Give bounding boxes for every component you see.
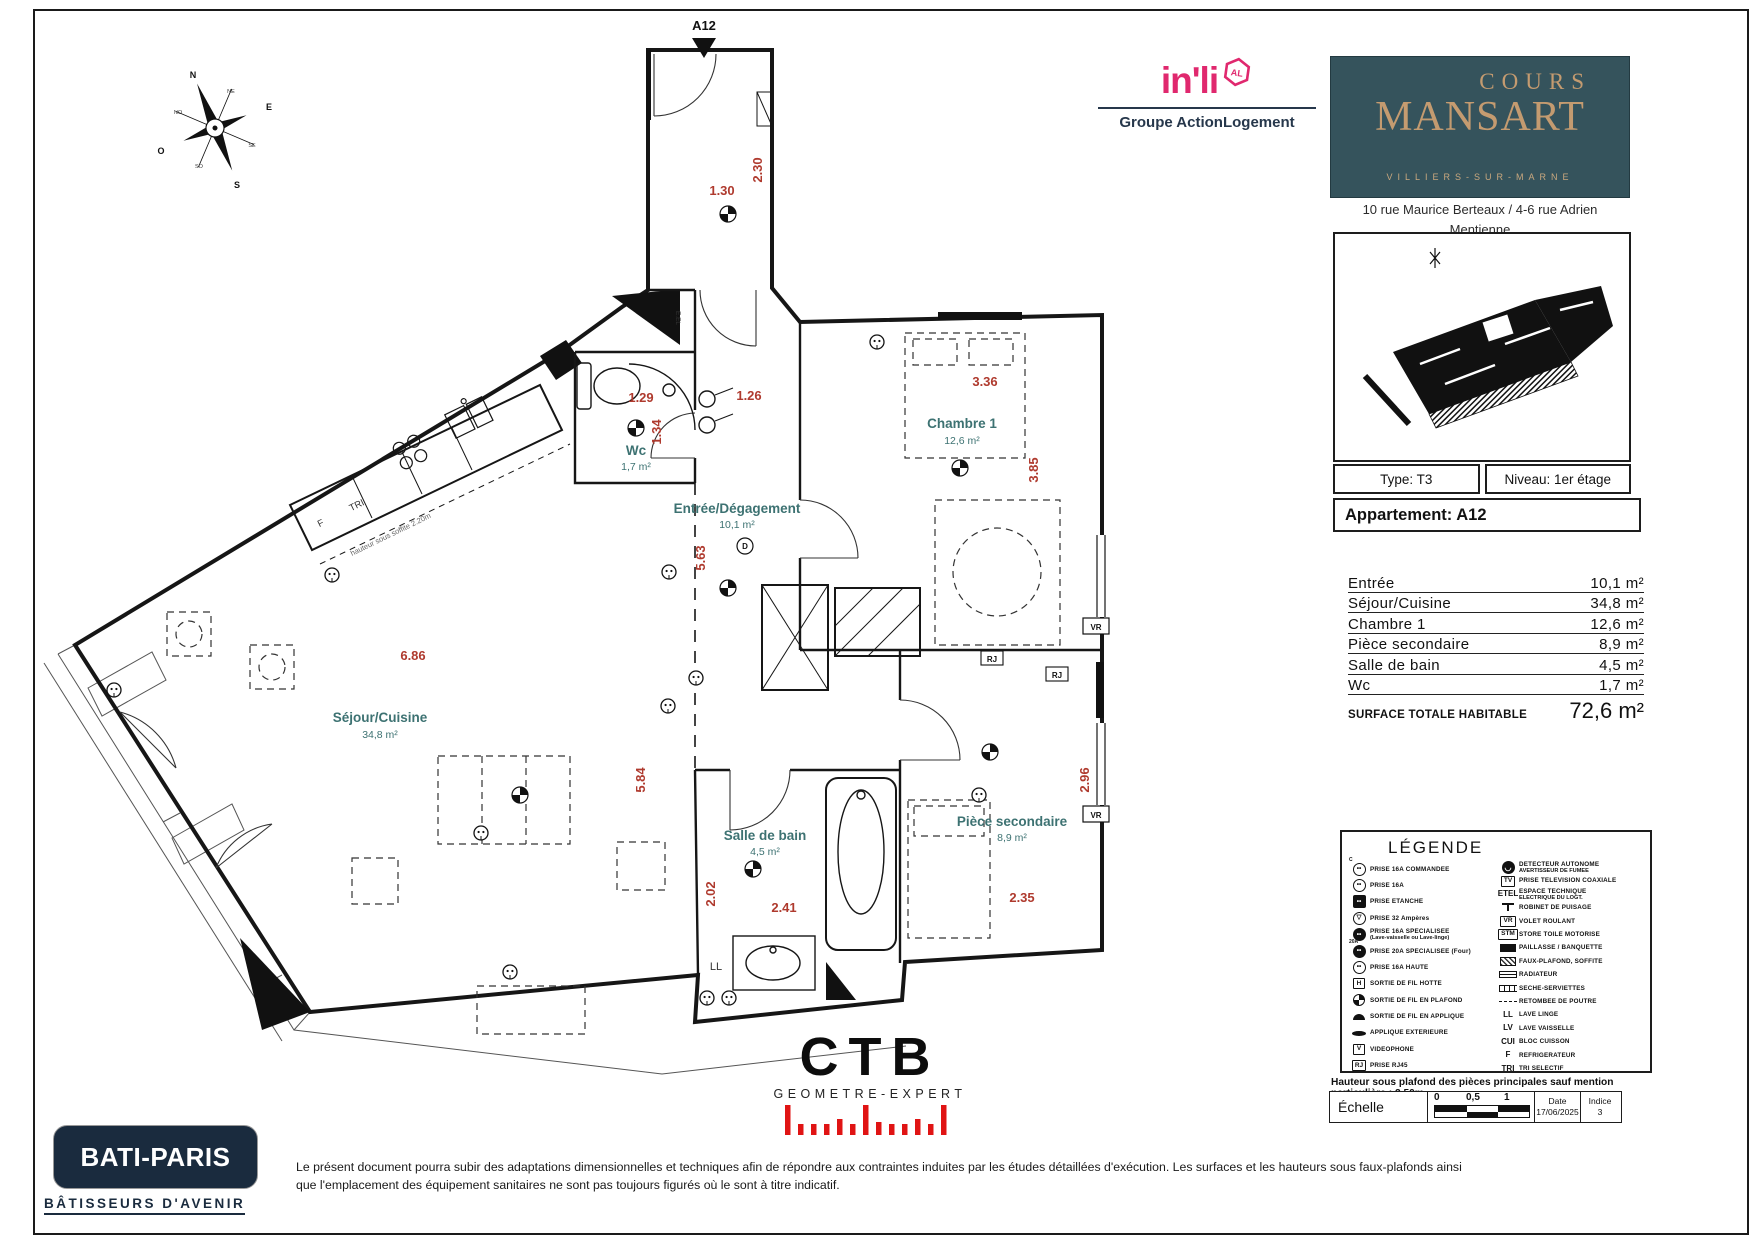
svg-text:1.29: 1.29: [628, 390, 653, 405]
soffit-note: hauteur sous soffite 2.20m: [349, 511, 432, 558]
legend-icon: ••: [1353, 863, 1366, 876]
type-niveau-row: Type: T3 Niveau: 1er étage: [1333, 464, 1631, 494]
scale-tick-1: 1: [1504, 1092, 1510, 1103]
legend-icon: STM: [1498, 929, 1518, 940]
scale-label: Échelle: [1330, 1092, 1428, 1122]
legend-label: PRISE 16A HAUTE: [1370, 964, 1428, 971]
legend-icon: LV: [1502, 1022, 1514, 1034]
legend-label: PRISE ETANCHE: [1370, 898, 1423, 905]
svg-text:3.36: 3.36: [972, 374, 997, 389]
ctb-logo: CTB GEOMETRE-EXPERT: [768, 1030, 972, 1140]
svg-text:5.84: 5.84: [633, 767, 648, 793]
room-labels: Wc 1,7 m² Chambre 1 12,6 m² Entrée/Dégag…: [333, 416, 1068, 858]
room-piece2: Pièce secondaire: [957, 814, 1068, 829]
legend-label: DETECTEUR AUTONOME AVERTISSEUR DE FUMEE: [1519, 861, 1599, 875]
svg-text:2.02: 2.02: [703, 881, 718, 906]
legend-icon: F: [1502, 1049, 1514, 1061]
room-sdb: Salle de bain: [724, 828, 807, 843]
legend-label: RETOMBEE DE POUTRE: [1519, 998, 1597, 1005]
eel-label: E.EL: [674, 311, 681, 325]
dimension-labels: 2.30 1.30 1.29 1.34 1.26 3.36 3.85 5.63 …: [400, 157, 1092, 915]
compass-o: O: [157, 146, 164, 156]
indice-cell: Indice 3: [1581, 1092, 1619, 1122]
legend-item: SORTIE DE FIL EN PLAFOND: [1348, 992, 1497, 1008]
svg-text:1.26: 1.26: [736, 388, 761, 403]
legend-icon: [1499, 985, 1517, 992]
legend-item: FAUX-PLAFOND, SOFFITE: [1497, 955, 1646, 968]
legend-item: C •• PRISE 16A COMMANDEE: [1348, 861, 1497, 877]
svg-text:3.85: 3.85: [1026, 457, 1041, 482]
compass-se: SE: [248, 143, 256, 149]
surface-room-label: Salle de bain: [1348, 657, 1440, 674]
surface-room-label: Wc: [1348, 677, 1370, 694]
door-d-label: D: [742, 542, 748, 551]
legend-item: ▽ PRISE 32 Ampères: [1348, 910, 1497, 926]
legend-item: RJ PRISE RJ45: [1348, 1058, 1497, 1074]
surface-row: Salle de bain 4,5 m²: [1348, 654, 1644, 675]
surface-room-label: Entrée: [1348, 575, 1395, 592]
legend-item: ETEL ESPACE TECHNIQUE ELECTRIQUE DU LOGT…: [1497, 888, 1646, 901]
legend-item: ◡ DETECTEUR AUTONOME AVERTISSEUR DE FUME…: [1497, 861, 1646, 874]
vr-label: VR: [1090, 811, 1101, 820]
svg-text:8,9 m²: 8,9 m²: [997, 832, 1027, 844]
surface-total: SURFACE TOTALE HABITABLE 72,6 m²: [1348, 694, 1644, 724]
vr-label: VR: [1090, 623, 1101, 632]
legend-label: SORTIE DE FIL HOTTE: [1370, 980, 1442, 987]
legend-icon: ••: [1353, 961, 1366, 974]
rj-label: RJ: [1052, 671, 1062, 680]
surface-room-value: 1,7 m²: [1599, 677, 1644, 694]
legend-icon: [1353, 1014, 1365, 1020]
legend-icon: [1499, 1001, 1517, 1002]
legend-item: RETOMBEE DE POUTRE: [1497, 995, 1646, 1008]
al-hexagon-icon: AL: [1219, 54, 1255, 90]
surface-total-label: SURFACE TOTALE HABITABLE: [1348, 709, 1527, 724]
legend-item: PAILLASSE / BANQUETTE: [1497, 941, 1646, 954]
legend-icon: TRI: [1502, 1063, 1515, 1075]
legend-label: SECHE-SERVIETTES: [1519, 985, 1585, 992]
legend-item: TV PRISE TELEVISION COAXIALE: [1497, 874, 1646, 887]
fridge-label: F: [316, 517, 326, 530]
legend-label: LAVE VAISSELLE: [1519, 1025, 1574, 1032]
legend-icon: [1499, 971, 1517, 978]
project-name-main: MANSART: [1331, 93, 1629, 141]
svg-text:2.96: 2.96: [1077, 767, 1092, 792]
surface-room-value: 34,8 m²: [1590, 595, 1644, 612]
legend-item: •• PRISE 16A HAUTE: [1348, 959, 1497, 975]
surface-row: Pièce secondaire 8,9 m²: [1348, 634, 1644, 655]
legend-icon: H: [1353, 978, 1365, 989]
legend-item: V VIDEOPHONE: [1348, 1041, 1497, 1057]
legend-label: ROBINET DE PUISAGE: [1519, 904, 1592, 911]
inli-wordmark: in'li: [1161, 62, 1218, 99]
legend-item: LV LAVE VAISSELLE: [1497, 1022, 1646, 1035]
svg-text:6.86: 6.86: [400, 648, 425, 663]
surface-room-value: 12,6 m²: [1590, 616, 1644, 633]
surface-room-value: 4,5 m²: [1599, 657, 1644, 674]
svg-text:34,8 m²: 34,8 m²: [362, 729, 398, 741]
legend-label: FAUX-PLAFOND, SOFFITE: [1519, 958, 1603, 965]
legend-label: REFRIGERATEUR: [1519, 1052, 1575, 1059]
bati-paris-tagline: BÂTISSEURS D'AVENIR: [44, 1196, 245, 1215]
apartment-cell: Appartement: A12: [1333, 498, 1641, 532]
legend-label: SORTIE DE FIL EN PLAFOND: [1370, 997, 1463, 1004]
svg-text:4,5 m²: 4,5 m²: [750, 846, 780, 858]
compass-e: E: [266, 102, 272, 112]
door-swings: [120, 54, 960, 868]
surface-total-value: 72,6 m²: [1569, 698, 1644, 724]
niveau-cell: Niveau: 1er étage: [1485, 464, 1632, 494]
room-entree: Entrée/Dégagement: [674, 501, 801, 516]
room-chambre1: Chambre 1: [927, 416, 997, 431]
svg-text:2.41: 2.41: [771, 900, 796, 915]
sanitary-fixtures: [577, 363, 896, 990]
legend-label: APPLIQUE EXTERIEURE: [1370, 1029, 1448, 1036]
legend-icon: ••: [1353, 895, 1366, 908]
legend-label: PRISE TELEVISION COAXIALE: [1519, 877, 1616, 884]
compass-so: SO: [195, 164, 204, 170]
legend-item: H SORTIE DE FIL HOTTE: [1348, 976, 1497, 992]
svg-text:AL: AL: [1230, 67, 1244, 79]
legend-label: PRISE 32 Ampères: [1370, 915, 1429, 922]
disclaimer-text: Le présent document pourra subir des ada…: [296, 1158, 1464, 1195]
surface-row: Chambre 1 12,6 m²: [1348, 613, 1644, 634]
surface-room-label: Chambre 1: [1348, 616, 1426, 633]
legend-label: BLOC CUISSON: [1519, 1038, 1570, 1045]
bati-paris-logo: BATI-PARIS: [53, 1125, 258, 1189]
svg-text:2.30: 2.30: [750, 157, 765, 182]
room-wc: Wc: [626, 443, 647, 458]
legend-icon: ••: [1353, 879, 1366, 892]
surface-row: Wc 1,7 m²: [1348, 675, 1644, 696]
legend-item: TRI TRI SELECTIF: [1497, 1062, 1646, 1075]
legend-item: SORTIE DE FIL EN APPLIQUE: [1348, 1009, 1497, 1025]
indice-value: 3: [1598, 1107, 1603, 1118]
floor-plan: N E S O NE SE SO NO: [0, 0, 1160, 1100]
ll-label: LL: [710, 961, 722, 973]
legend-item: •• PRISE ETANCHE: [1348, 894, 1497, 910]
type-cell: Type: T3: [1333, 464, 1480, 494]
legend-box: LÉGENDE C •• PRISE 16A COMMANDEE: [1340, 830, 1652, 1073]
scale-box: Échelle 0 0,5 1 Date 17/06/2025 Indice 3: [1329, 1091, 1622, 1123]
legend-icon: [1352, 1031, 1366, 1036]
electrical-symbols: D: [107, 206, 998, 1005]
legend-item: F REFRIGERATEUR: [1497, 1048, 1646, 1061]
cours-mansart-logo: COURS MANSART VILLIERS-SUR-MARNE: [1331, 57, 1629, 197]
legend-item: SECHE-SERVIETTES: [1497, 982, 1646, 995]
legend-icon: ▽: [1353, 912, 1366, 925]
legend-label: TRI SELECTIF: [1519, 1065, 1564, 1072]
legend-icon: VR: [1500, 916, 1515, 927]
inli-group-name: Groupe ActionLogement: [1098, 114, 1316, 131]
legend-icon: LL: [1502, 1009, 1514, 1021]
legend-item: •• PRISE 16A: [1348, 877, 1497, 893]
legend-label: PRISE 16A: [1370, 882, 1404, 889]
legend-label: PAILLASSE / BANQUETTE: [1519, 944, 1603, 951]
legend-item: ROBINET DE PUISAGE: [1497, 901, 1646, 914]
legend-item: 20A •• PRISE 20A SPECIALISEE (Four): [1348, 943, 1497, 959]
legend-icon: TV: [1501, 876, 1515, 887]
legend-icon: ••: [1353, 945, 1366, 958]
outer-walls: [75, 50, 1102, 1022]
room-sejour: Séjour/Cuisine: [333, 710, 428, 725]
surface-row: Séjour/Cuisine 34,8 m²: [1348, 593, 1644, 614]
site-plan-graphic: [1335, 234, 1625, 456]
svg-text:10,1 m²: 10,1 m²: [719, 519, 755, 531]
legend-label: PRISE 16A SPECIALISEE (Lave-vaisselle ou…: [1370, 928, 1450, 942]
project-city: VILLIERS-SUR-MARNE: [1331, 172, 1629, 182]
windows: [757, 92, 1107, 805]
date-label: Date: [1549, 1096, 1567, 1107]
furniture-dashed: [167, 333, 1060, 1034]
unit-label: A12: [692, 18, 716, 33]
compass-n: N: [190, 70, 197, 80]
ctb-wordmark: CTB: [768, 1030, 972, 1084]
legend-icon: RJ: [1352, 1060, 1366, 1071]
scale-tick-05: 0,5: [1466, 1092, 1480, 1103]
svg-text:1.34: 1.34: [649, 419, 664, 445]
legend-item: CUI BLOC CUISSON: [1497, 1035, 1646, 1048]
legend-label: VOLET ROULANT: [1519, 918, 1575, 925]
scale-bar-graphic: [1434, 1105, 1530, 1118]
legend-icon: ◡: [1502, 861, 1515, 874]
date-value: 17/06/2025: [1536, 1107, 1579, 1118]
compass-ne: NE: [227, 89, 235, 95]
surface-room-label: Pièce secondaire: [1348, 636, 1469, 653]
legend-item: APPLIQUE EXTERIEURE: [1348, 1025, 1497, 1041]
legend-right-column: ◡ DETECTEUR AUTONOME AVERTISSEUR DE FUME…: [1497, 861, 1646, 1075]
svg-text:12,6 m²: 12,6 m²: [944, 435, 980, 447]
legend-label: VIDEOPHONE: [1370, 1046, 1414, 1053]
kitchen-counter: [290, 385, 570, 564]
compass-icon: N E S O NE SE SO NO: [157, 70, 272, 190]
rj-label: RJ: [987, 655, 997, 664]
project-name-top: COURS: [1479, 69, 1591, 95]
legend-icon: ETEL: [1498, 888, 1518, 900]
legend-title: LÉGENDE: [1388, 838, 1646, 858]
misc-labels: E.EL LL F TRI hauteur sous soffite 2.20m: [316, 311, 722, 973]
surface-room-label: Séjour/Cuisine: [1348, 595, 1451, 612]
surface-room-value: 10,1 m²: [1590, 575, 1644, 592]
legend-icon: [1502, 903, 1514, 912]
date-cell: Date 17/06/2025: [1535, 1092, 1581, 1122]
svg-text:1,7 m²: 1,7 m²: [621, 461, 651, 473]
site-plan-thumbnail: [1333, 232, 1631, 462]
scale-tick-0: 0: [1434, 1092, 1440, 1103]
legend-icon: [1500, 944, 1516, 952]
legend-label: SORTIE DE FIL EN APPLIQUE: [1370, 1013, 1464, 1020]
scale-bar: 0 0,5 1: [1428, 1092, 1535, 1122]
legend-icon: [1353, 994, 1365, 1006]
indice-label: Indice: [1589, 1096, 1612, 1107]
legend-label: PRISE RJ45: [1370, 1062, 1408, 1069]
legend-item: STM STORE TOILE MOTORISE: [1497, 928, 1646, 941]
legend-label: ESPACE TECHNIQUE ELECTRIQUE DU LOGT.: [1519, 888, 1586, 902]
terrace-lines: [44, 645, 906, 1074]
compass-s: S: [234, 180, 240, 190]
legend-label: LAVE LINGE: [1519, 1011, 1558, 1018]
shafts: [762, 585, 920, 690]
svg-text:5.63: 5.63: [693, 545, 708, 570]
legend-item: •• PRISE 16A SPECIALISEE (Lave-vaisselle…: [1348, 927, 1497, 943]
inli-logo: in'li AL Groupe ActionLogement: [1098, 62, 1316, 131]
legend-label: PRISE 16A COMMANDEE: [1370, 866, 1450, 873]
legend-label: PRISE 20A SPECIALISEE (Four): [1370, 948, 1471, 955]
legend-icon: [1500, 957, 1516, 966]
surface-row: Entrée 10,1 m²: [1348, 572, 1644, 593]
legend-icon: CUI: [1501, 1036, 1515, 1048]
ctb-bars-icon: [783, 1101, 958, 1135]
inli-divider: [1098, 107, 1316, 109]
legend-left-column: C •• PRISE 16A COMMANDEE •• PRISE 1: [1348, 861, 1497, 1075]
legend-item: RADIATEUR: [1497, 968, 1646, 981]
legend-item: LL LAVE LINGE: [1497, 1008, 1646, 1021]
surface-room-value: 8,9 m²: [1599, 636, 1644, 653]
svg-text:2.35: 2.35: [1009, 890, 1034, 905]
compass-no: NO: [174, 110, 183, 116]
legend-label: STORE TOILE MOTORISE: [1519, 931, 1600, 938]
legend-item: VR VOLET ROULANT: [1497, 915, 1646, 928]
surface-table: Entrée 10,1 m² Séjour/Cuisine 34,8 m² Ch…: [1348, 572, 1644, 695]
svg-text:1.30: 1.30: [709, 183, 734, 198]
legend-label: RADIATEUR: [1519, 971, 1557, 978]
ctb-subtitle: GEOMETRE-EXPERT: [768, 1087, 972, 1101]
legend-icon: V: [1353, 1044, 1365, 1055]
